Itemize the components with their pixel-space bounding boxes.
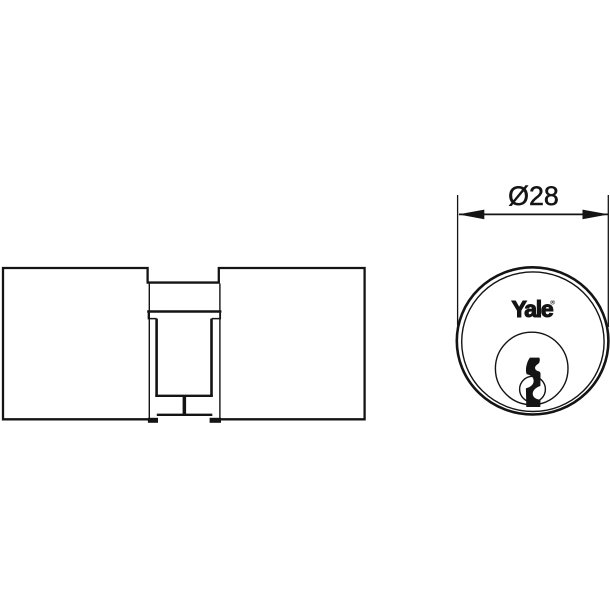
svg-text:Ø28: Ø28 [508, 181, 559, 211]
svg-text:®: ® [550, 298, 555, 306]
svg-text:Yale: Yale [512, 296, 553, 322]
